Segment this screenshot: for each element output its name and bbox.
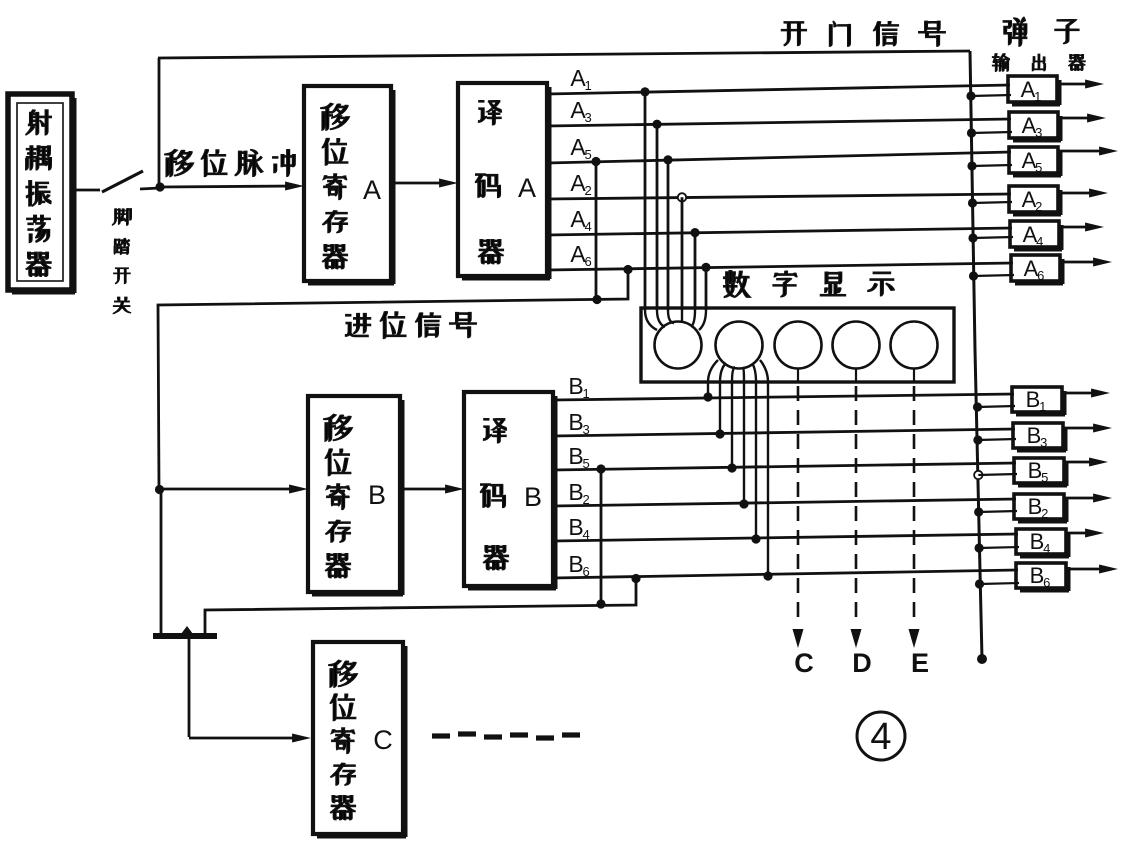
svg-text:6: 6 — [1037, 268, 1044, 283]
svg-text:2: 2 — [585, 183, 592, 198]
svg-text:5: 5 — [583, 456, 590, 471]
svg-text:4: 4 — [870, 716, 891, 758]
svg-text:D: D — [852, 648, 872, 678]
svg-text:1: 1 — [1034, 89, 1041, 104]
svg-text:5: 5 — [585, 147, 592, 162]
svg-text:5: 5 — [1041, 470, 1048, 485]
svg-text:B: B — [568, 514, 583, 540]
svg-text:1: 1 — [583, 386, 590, 401]
svg-text:B: B — [568, 551, 583, 577]
svg-text:4: 4 — [1036, 234, 1043, 249]
svg-text:6: 6 — [585, 254, 592, 269]
svg-text:C: C — [794, 648, 814, 678]
svg-text:3: 3 — [1035, 125, 1042, 140]
svg-text:2: 2 — [583, 492, 590, 507]
svg-text:3: 3 — [585, 110, 592, 125]
svg-text:2: 2 — [1041, 506, 1048, 521]
svg-text:B: B — [568, 409, 583, 435]
svg-text:6: 6 — [1043, 575, 1050, 590]
svg-text:A: A — [363, 175, 381, 205]
svg-text:B: B — [568, 373, 583, 399]
svg-text:3: 3 — [1040, 435, 1047, 450]
svg-text:C: C — [373, 725, 393, 755]
svg-text:E: E — [911, 648, 929, 678]
svg-text:4: 4 — [585, 219, 592, 234]
svg-text:B: B — [568, 479, 583, 505]
svg-text:B: B — [568, 443, 583, 469]
svg-text:3: 3 — [583, 422, 590, 437]
svg-text:A: A — [518, 173, 536, 203]
svg-text:5: 5 — [1035, 160, 1042, 175]
svg-text:1: 1 — [1039, 399, 1046, 414]
svg-text:4: 4 — [1043, 541, 1050, 556]
svg-text:2: 2 — [1035, 199, 1042, 214]
svg-text:6: 6 — [583, 564, 590, 579]
svg-text:B: B — [368, 480, 386, 510]
svg-text:1: 1 — [585, 78, 592, 93]
svg-text:4: 4 — [583, 527, 590, 542]
svg-text:B: B — [524, 482, 542, 512]
